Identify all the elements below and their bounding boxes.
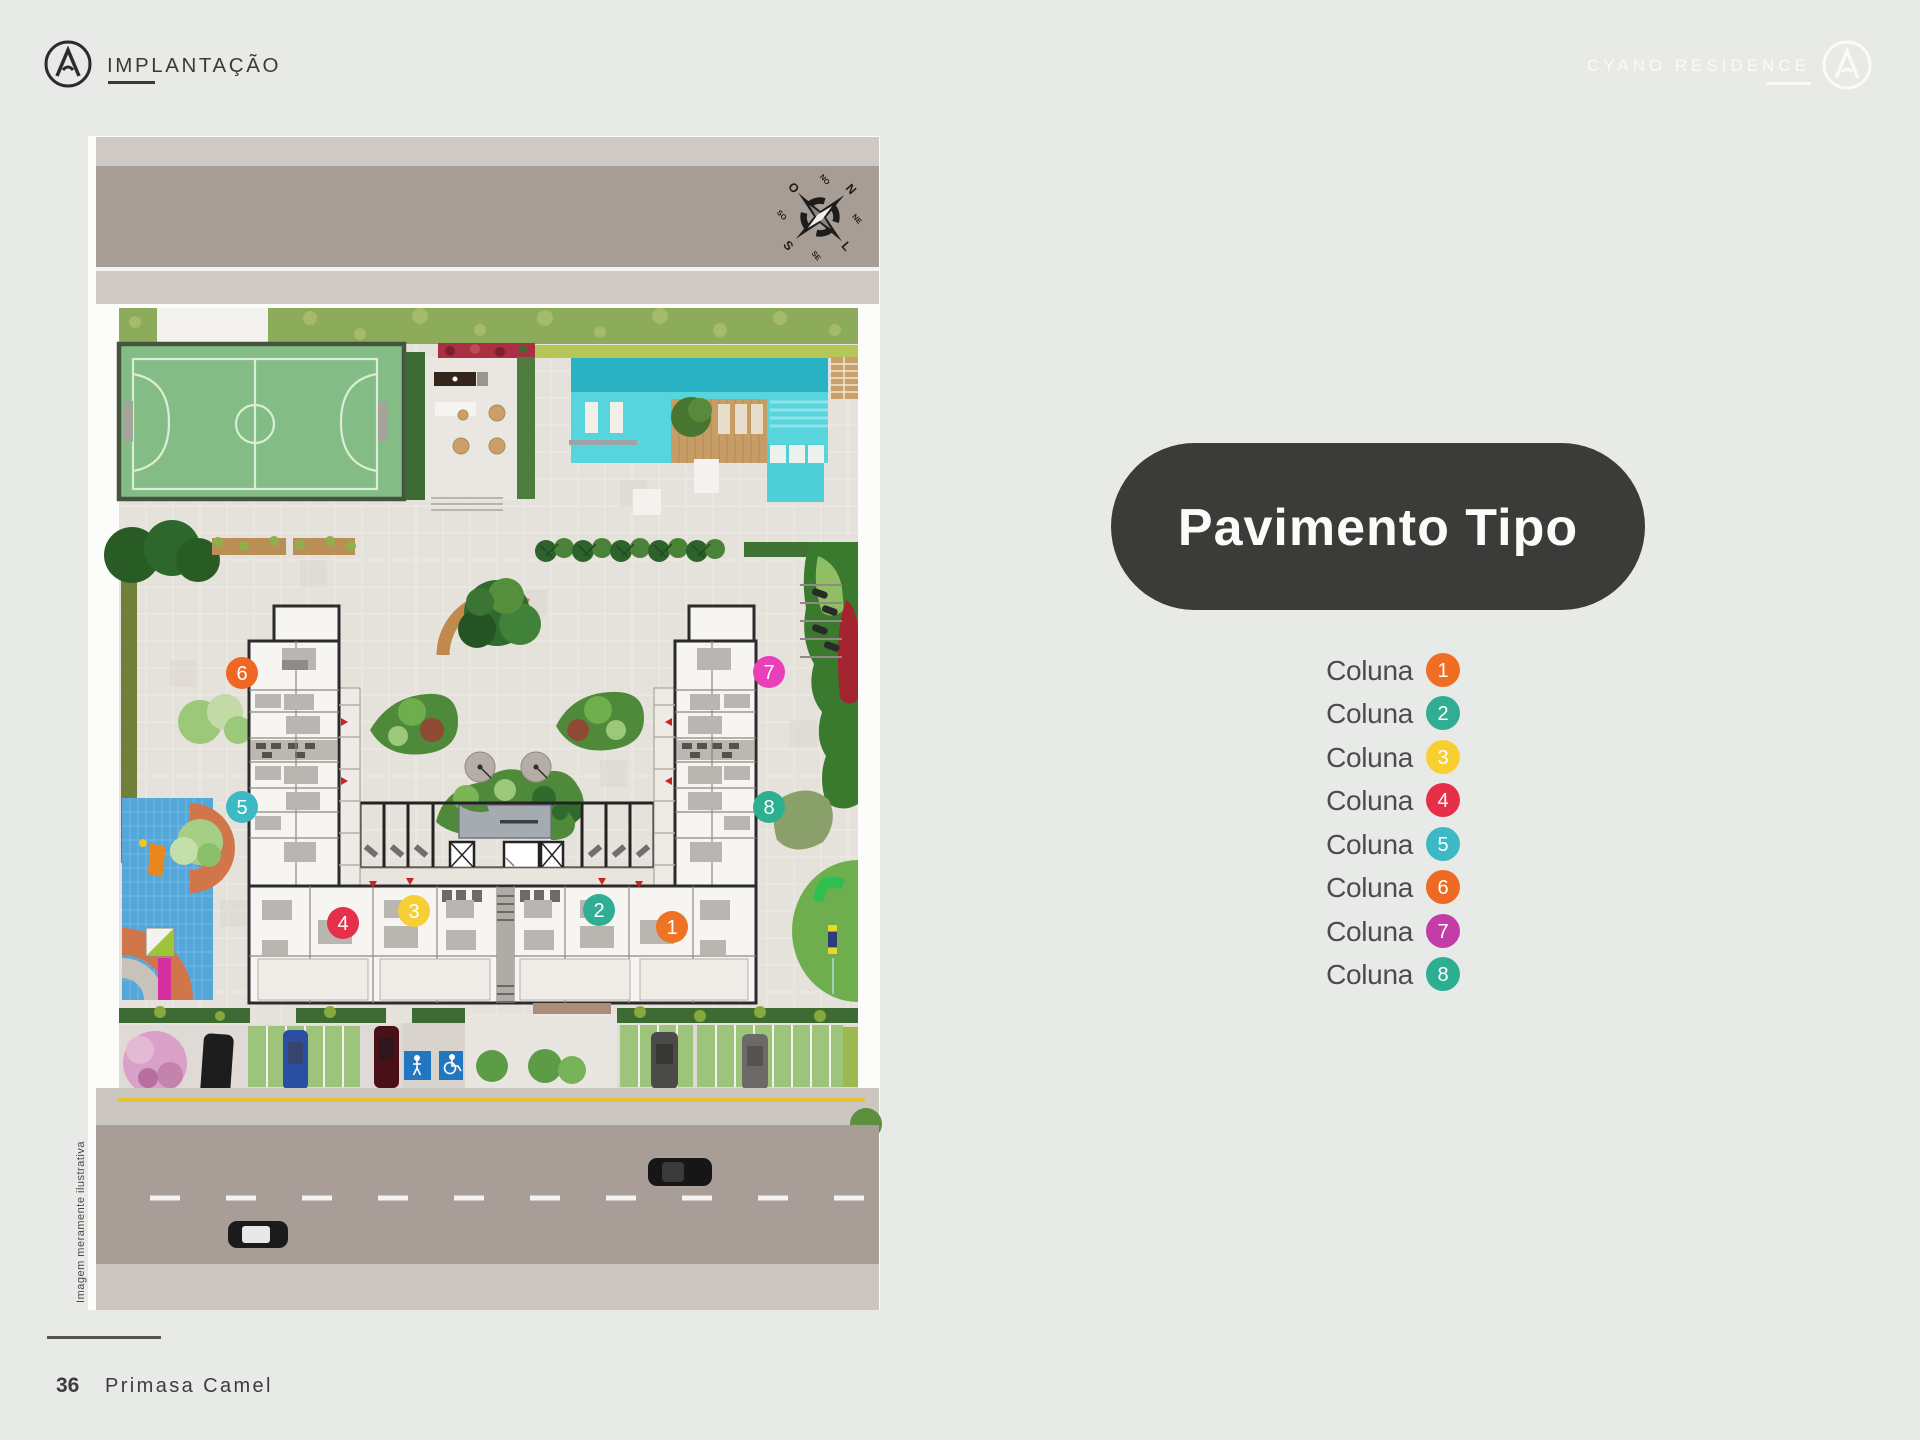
svg-text:Coluna: Coluna xyxy=(1326,742,1414,773)
svg-text:Coluna: Coluna xyxy=(1326,698,1414,729)
svg-text:Coluna: Coluna xyxy=(1326,916,1414,947)
svg-text:4: 4 xyxy=(337,913,348,935)
svg-text:Pavimento Tipo: Pavimento Tipo xyxy=(1178,499,1578,557)
svg-text:CYANO RESIDENCE: CYANO RESIDENCE xyxy=(1587,56,1810,75)
svg-text:IMPLANTAÇÃO: IMPLANTAÇÃO xyxy=(107,54,281,77)
svg-text:7: 7 xyxy=(763,662,774,684)
svg-text:5: 5 xyxy=(1437,834,1448,856)
svg-text:Primasa Camel: Primasa Camel xyxy=(105,1375,273,1397)
svg-text:5: 5 xyxy=(236,797,247,819)
svg-text:8: 8 xyxy=(763,797,774,819)
svg-text:Imagem meramente ilustrativa: Imagem meramente ilustrativa xyxy=(75,1141,87,1303)
svg-text:Coluna: Coluna xyxy=(1326,655,1414,686)
svg-text:Coluna: Coluna xyxy=(1326,872,1414,903)
svg-text:36: 36 xyxy=(56,1374,79,1397)
svg-text:Coluna: Coluna xyxy=(1326,829,1414,860)
svg-text:3: 3 xyxy=(1437,747,1448,769)
svg-text:6: 6 xyxy=(236,663,247,685)
svg-text:7: 7 xyxy=(1437,921,1448,943)
svg-text:Coluna: Coluna xyxy=(1326,959,1414,990)
svg-text:2: 2 xyxy=(593,900,604,922)
svg-text:6: 6 xyxy=(1437,877,1448,899)
svg-text:3: 3 xyxy=(408,901,419,923)
svg-text:8: 8 xyxy=(1437,964,1448,986)
svg-text:1: 1 xyxy=(1437,660,1448,682)
svg-text:2: 2 xyxy=(1437,703,1448,725)
svg-text:1: 1 xyxy=(666,917,677,939)
svg-text:Coluna: Coluna xyxy=(1326,785,1414,816)
svg-text:4: 4 xyxy=(1437,790,1448,812)
